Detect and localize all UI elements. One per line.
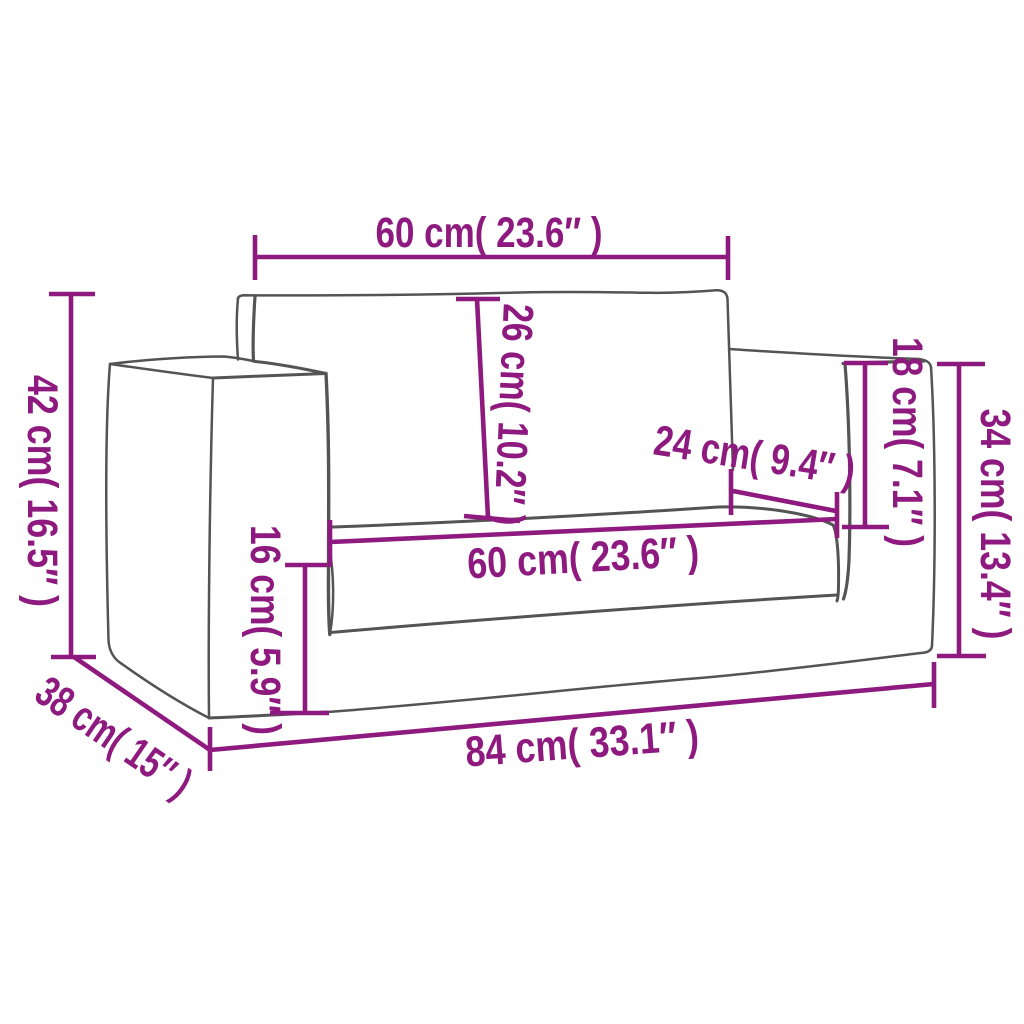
svg-text:26 cm( 10.2″ ): 26 cm( 10.2″ ) [484,303,542,527]
svg-text:34 cm( 13.4″ ): 34 cm( 13.4″ ) [971,409,1019,640]
svg-text:60 cm( 23.6″ ): 60 cm( 23.6″ ) [376,209,603,257]
svg-text:42 cm( 16.5″ ): 42 cm( 16.5″ ) [18,375,66,607]
svg-text:16 cm( 5.9″ ): 16 cm( 5.9″ ) [241,525,289,735]
svg-text:18 cm( 7.1″ ): 18 cm( 7.1″ ) [883,337,931,547]
